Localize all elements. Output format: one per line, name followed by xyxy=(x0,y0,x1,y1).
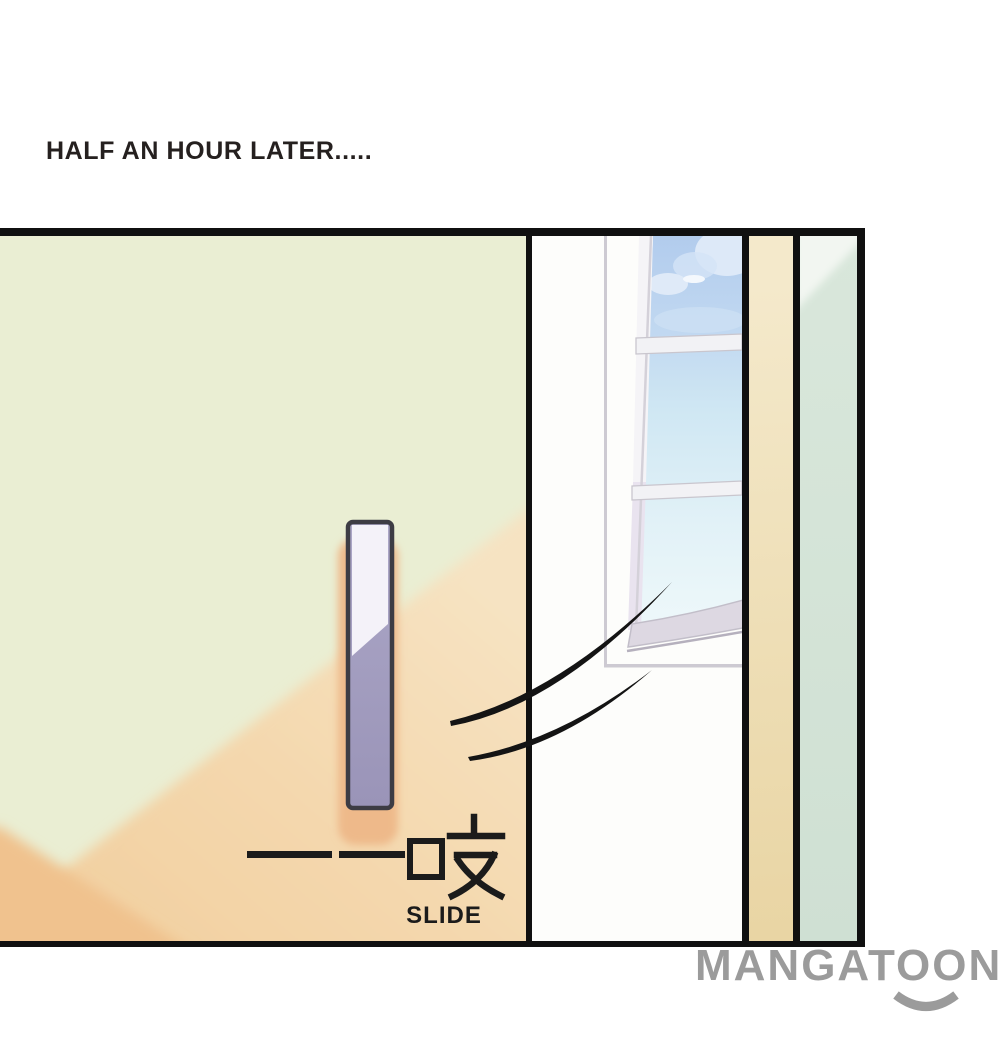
door-edge-line xyxy=(526,228,532,947)
wall-strip-mint xyxy=(794,228,862,941)
panel-border-right xyxy=(857,228,865,947)
dash-segment xyxy=(247,851,332,858)
mangatoon-watermark: MANGATOON xyxy=(695,944,1000,988)
sash-bar xyxy=(636,334,742,354)
scene-caption: HALF AN HOUR LATER..... xyxy=(46,137,372,166)
sky xyxy=(637,236,742,630)
sfx-slide-label: SLIDE xyxy=(406,902,482,929)
window-frame-line xyxy=(604,236,607,666)
watermark-smile-icon xyxy=(889,990,963,1020)
sfx-dash xyxy=(247,851,405,858)
cloud xyxy=(648,273,688,295)
cloud xyxy=(654,307,746,333)
dash-segment xyxy=(339,851,405,858)
wall-strip-tan xyxy=(749,236,793,941)
wall-divider-line xyxy=(742,228,749,947)
window-sill-line xyxy=(604,664,744,668)
wall-divider-line xyxy=(793,228,800,947)
cloud xyxy=(683,275,705,283)
mint-surface xyxy=(800,236,857,941)
comic-page: HALF AN HOUR LATER..... xyxy=(0,0,1000,1061)
comic-panel: SLIDE xyxy=(0,228,865,947)
panel-border-top xyxy=(0,228,865,236)
